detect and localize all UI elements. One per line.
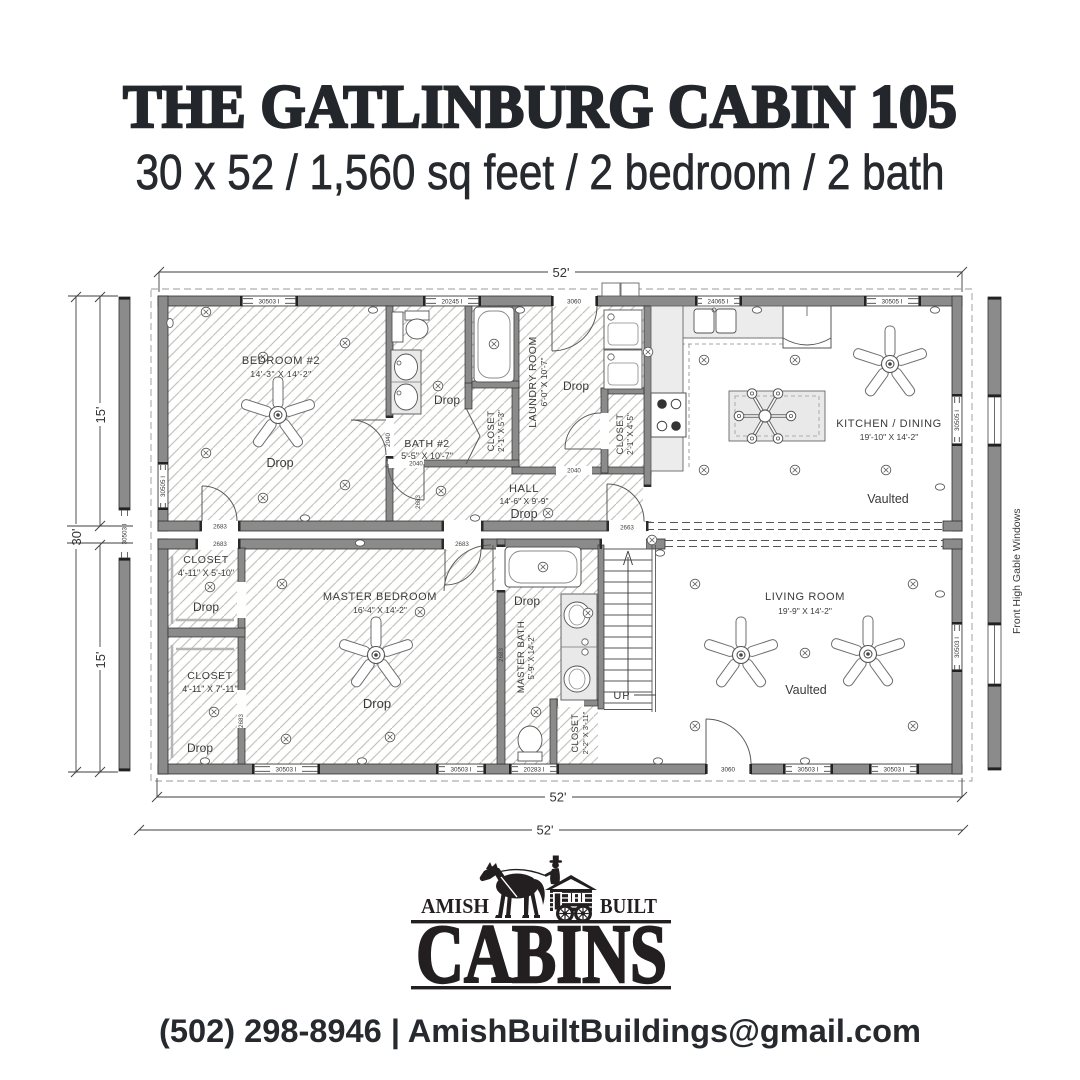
svg-text:30503 I: 30503 I xyxy=(450,766,471,773)
svg-text:2040: 2040 xyxy=(567,468,581,475)
svg-text:CLOSET: CLOSET xyxy=(183,554,229,566)
svg-text:6'-0" X 10'-7": 6'-0" X 10'-7" xyxy=(539,358,549,407)
svg-text:MASTER BEDROOM: MASTER BEDROOM xyxy=(323,591,437,603)
svg-text:Drop: Drop xyxy=(434,393,460,407)
svg-text:5'-5" X 10'-7": 5'-5" X 10'-7" xyxy=(401,451,453,461)
svg-text:4'-11" X 5'-10": 4'-11" X 5'-10" xyxy=(178,568,234,578)
svg-text:4'-11" X 7'-11": 4'-11" X 7'-11" xyxy=(182,684,238,694)
svg-text:Vaulted: Vaulted xyxy=(867,492,909,506)
svg-text:(502) 298-8946 | AmishBuiltBui: (502) 298-8946 | AmishBuiltBuildings@gma… xyxy=(159,1013,921,1049)
svg-text:2'-1" X 5'-3": 2'-1" X 5'-3" xyxy=(497,410,506,452)
svg-text:2040: 2040 xyxy=(385,433,392,447)
svg-text:CLOSET: CLOSET xyxy=(615,413,626,454)
svg-text:15': 15' xyxy=(93,652,108,669)
svg-text:LAUNDRY ROOM: LAUNDRY ROOM xyxy=(527,336,539,427)
svg-text:30503 I: 30503 I xyxy=(954,637,961,658)
svg-text:30505 I: 30505 I xyxy=(954,410,961,431)
svg-text:30503 I: 30503 I xyxy=(883,766,904,773)
svg-text:30': 30' xyxy=(69,529,84,546)
svg-text:CLOSET: CLOSET xyxy=(486,410,497,451)
svg-text:3060: 3060 xyxy=(567,298,582,305)
svg-text:Drop: Drop xyxy=(563,379,589,393)
svg-text:BATH #2: BATH #2 xyxy=(404,438,449,450)
svg-text:2683: 2683 xyxy=(213,524,227,531)
svg-text:30503 I: 30503 I xyxy=(797,766,818,773)
svg-text:2683: 2683 xyxy=(238,714,245,728)
svg-text:Drop: Drop xyxy=(514,594,540,608)
svg-text:THE GATLINBURG CABIN 105: THE GATLINBURG CABIN 105 xyxy=(123,74,957,141)
svg-text:5'-9" X 14'-2": 5'-9" X 14'-2" xyxy=(527,634,536,679)
svg-text:30503 I: 30503 I xyxy=(275,766,296,773)
svg-text:2683: 2683 xyxy=(213,541,227,548)
svg-text:2040: 2040 xyxy=(409,461,423,468)
svg-text:Drop: Drop xyxy=(363,696,391,711)
svg-text:UP: UP xyxy=(613,690,630,702)
svg-text:HALL: HALL xyxy=(509,483,539,495)
svg-text:Vaulted: Vaulted xyxy=(785,683,827,697)
svg-text:19'-10" X 14'-2": 19'-10" X 14'-2" xyxy=(860,432,918,442)
svg-text:2663: 2663 xyxy=(620,525,634,532)
svg-text:Drop: Drop xyxy=(193,600,219,614)
svg-text:30505 I: 30505 I xyxy=(160,476,167,497)
svg-text:30 x 52 / 1,560 sq feet / 2 be: 30 x 52 / 1,560 sq feet / 2 bedroom / 2 … xyxy=(136,146,945,200)
svg-text:CLOSET: CLOSET xyxy=(570,713,580,752)
svg-text:KITCHEN / DINING: KITCHEN / DINING xyxy=(836,418,942,430)
svg-text:30505 I: 30505 I xyxy=(881,298,902,305)
svg-text:14'-3" X 14'-2": 14'-3" X 14'-2" xyxy=(250,369,311,379)
svg-text:16'-4" X 14'-2": 16'-4" X 14'-2" xyxy=(353,605,407,615)
svg-text:20283 I: 20283 I xyxy=(523,766,544,773)
svg-text:52': 52' xyxy=(537,823,554,838)
svg-text:MASTER BATH: MASTER BATH xyxy=(516,621,527,693)
svg-text:2683: 2683 xyxy=(498,648,505,662)
svg-text:Drop: Drop xyxy=(510,507,537,521)
svg-text:2683: 2683 xyxy=(455,541,469,548)
svg-text:24065 I: 24065 I xyxy=(707,298,728,305)
svg-text:Front High Gable Windows: Front High Gable Windows xyxy=(1011,509,1023,634)
svg-text:19'-9" X 14'-2": 19'-9" X 14'-2" xyxy=(778,606,832,616)
svg-text:52': 52' xyxy=(553,265,570,280)
svg-text:15': 15' xyxy=(93,407,108,424)
svg-text:2'-1" X 4'-5": 2'-1" X 4'-5" xyxy=(626,413,635,455)
svg-text:CLOSET: CLOSET xyxy=(187,670,233,682)
svg-text:30503 I: 30503 I xyxy=(258,298,279,305)
svg-text:LIVING ROOM: LIVING ROOM xyxy=(765,591,845,603)
svg-text:2683: 2683 xyxy=(415,495,422,509)
svg-text:Drop: Drop xyxy=(266,456,293,470)
svg-text:20245 I: 20245 I xyxy=(441,298,462,305)
svg-text:52': 52' xyxy=(550,790,567,805)
svg-text:3060: 3060 xyxy=(721,766,736,773)
svg-text:BEDROOM #2: BEDROOM #2 xyxy=(242,355,320,367)
svg-text:14'-6" X 9'-9": 14'-6" X 9'-9" xyxy=(500,496,549,506)
svg-text:2'-2" X 3'-11": 2'-2" X 3'-11" xyxy=(581,711,590,754)
svg-text:Drop: Drop xyxy=(187,741,213,755)
